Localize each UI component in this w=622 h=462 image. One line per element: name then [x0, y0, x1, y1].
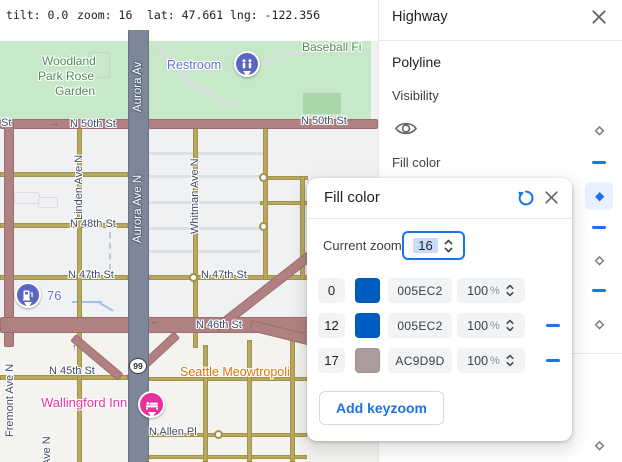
- street-label: N 50th St: [70, 118, 116, 130]
- keyframe-diamond-icon[interactable]: [593, 439, 606, 452]
- zoom-readout: zoom: 16: [77, 8, 132, 22]
- minor-road: [149, 201, 260, 204]
- inn-pin[interactable]: [138, 391, 165, 418]
- park-label-line1[interactable]: Woodland: [42, 54, 96, 68]
- remove-keyzoom-dash-icon[interactable]: [546, 324, 560, 327]
- ballfield-area: [303, 93, 341, 114]
- street-label: N Allen Pl: [149, 426, 197, 438]
- fill-color-label: Fill color: [392, 155, 440, 170]
- street-label: Fremont Ave N: [4, 364, 16, 437]
- color-swatch[interactable]: [355, 278, 380, 303]
- tilt-readout: tilt: 0.0: [6, 8, 68, 22]
- keyzoom-dash-icon[interactable]: [592, 161, 606, 164]
- opacity-value: 100: [467, 284, 488, 298]
- opacity-value: 100: [467, 354, 488, 368]
- road-south-v: [203, 345, 208, 462]
- park-label-line2[interactable]: Park Rose: [38, 69, 94, 83]
- intersection-node: [214, 430, 223, 439]
- street-label: St: [1, 117, 11, 129]
- street-label: N 47th St: [201, 269, 247, 281]
- selected-keyframe[interactable]: [585, 182, 613, 210]
- road-south-v: [247, 340, 252, 462]
- building: [14, 192, 40, 204]
- alley-dashed: [109, 232, 111, 270]
- gas-station-pin[interactable]: [15, 282, 41, 308]
- dialog-close-icon[interactable]: [544, 190, 559, 205]
- keyzoom-level-chip[interactable]: 0: [318, 278, 345, 303]
- percent-sign: %: [490, 320, 500, 332]
- color-swatch[interactable]: [355, 313, 380, 338]
- current-zoom-stepper[interactable]: 16: [402, 231, 465, 260]
- creek: [99, 302, 114, 312]
- keyframe-diamond-icon[interactable]: [593, 254, 606, 267]
- hex-value-chip[interactable]: 005EC2: [388, 313, 452, 338]
- oneway-arrow: →: [50, 118, 59, 128]
- fill-color-dialog: Fill color Current zoom 16 0 005EC2 100 …: [307, 178, 572, 441]
- street-label-aurora: Aurora Ave N: [132, 175, 144, 243]
- stepper-chevrons-icon[interactable]: [505, 353, 515, 368]
- park-label-line3[interactable]: Garden: [55, 84, 95, 98]
- minor-road: [149, 152, 263, 155]
- panel-close-icon[interactable]: [591, 9, 607, 25]
- reset-icon[interactable]: [517, 189, 535, 207]
- minor-road: [149, 227, 260, 230]
- divider: [307, 218, 572, 219]
- baseball-field-label[interactable]: Baseball Fi: [302, 40, 361, 54]
- opacity-stepper[interactable]: 100 %: [457, 278, 525, 303]
- road-south-h: [149, 455, 307, 459]
- keyzoom-dash-icon[interactable]: [592, 226, 606, 229]
- hex-value-chip[interactable]: AC9D9D: [388, 348, 452, 373]
- inn-label[interactable]: Wallingford Inn: [41, 395, 127, 410]
- percent-sign: %: [490, 355, 500, 367]
- map-style-editor: tilt: 0.0 zoom: 16 lat: 47.661 lng: -122…: [0, 0, 622, 462]
- keyframe-diamond-selected-icon: [593, 190, 606, 203]
- road-fremont-ave: [4, 119, 14, 347]
- dialog-title: Fill color: [324, 189, 380, 206]
- restroom-icon: [240, 59, 254, 70]
- lng-readout: lng: -122.356: [230, 8, 320, 22]
- polyline-section-title: Polyline: [392, 54, 441, 70]
- intersection-node: [259, 173, 268, 182]
- keyframe-diamond-icon[interactable]: [593, 124, 606, 137]
- bed-icon: [145, 400, 159, 410]
- percent-sign: %: [490, 285, 500, 297]
- color-swatch[interactable]: [355, 348, 380, 373]
- route-99-shield: 99: [129, 358, 147, 374]
- gas-station-label[interactable]: 76: [47, 288, 61, 303]
- minor-road: [149, 175, 263, 178]
- cat-cafe-label[interactable]: Seattle Meowtropoli: [180, 365, 290, 379]
- remove-keyzoom-dash-icon[interactable]: [546, 359, 560, 362]
- keyzoom-level-chip[interactable]: 17: [318, 348, 345, 373]
- minor-road: [149, 250, 260, 253]
- street-label: N 50th St: [301, 115, 347, 127]
- street-label: Whitman Ave N: [189, 158, 201, 234]
- opacity-value: 100: [467, 319, 488, 333]
- current-zoom-label: Current zoom: [323, 238, 402, 253]
- street-label-aurora: Aurora Av: [132, 62, 144, 112]
- restroom-pin[interactable]: [234, 51, 260, 77]
- keyframe-diamond-icon[interactable]: [593, 318, 606, 331]
- map-status-bar: tilt: 0.0 zoom: 16 lat: 47.661 lng: -122…: [0, 0, 378, 30]
- stepper-chevrons-icon[interactable]: [443, 238, 454, 254]
- panel-title: Highway: [392, 9, 448, 25]
- restroom-label[interactable]: Restroom: [167, 58, 221, 72]
- opacity-stepper[interactable]: 100 %: [457, 348, 525, 373]
- oneway-arrow: ←: [150, 316, 159, 326]
- add-keyzoom-button[interactable]: Add keyzoom: [319, 391, 444, 425]
- keyzoom-level-chip[interactable]: 12: [318, 313, 345, 338]
- lat-readout: lat: 47.661: [147, 8, 223, 22]
- stepper-chevrons-icon[interactable]: [505, 318, 515, 333]
- route-99-number: 99: [133, 361, 142, 371]
- oneway-arrow: ↑: [72, 342, 77, 352]
- street-label: N 46th St: [196, 319, 242, 331]
- road-n-49th: [0, 172, 128, 177]
- hex-value-chip[interactable]: 005EC2: [388, 278, 452, 303]
- street-label: Linden Ave N: [73, 155, 85, 220]
- keyzoom-dash-icon[interactable]: [592, 289, 606, 292]
- street-label: N 45th St: [49, 365, 95, 377]
- current-zoom-value[interactable]: 16: [413, 238, 437, 253]
- street-label: N 47th St: [68, 269, 114, 281]
- opacity-stepper[interactable]: 100 %: [457, 313, 525, 338]
- road-south-v: [290, 335, 295, 462]
- stepper-chevrons-icon[interactable]: [505, 283, 515, 298]
- visibility-eye-icon[interactable]: [394, 120, 418, 137]
- gas-pump-icon: [22, 289, 34, 301]
- road-east-v: [263, 124, 268, 280]
- street-label: Ave N: [41, 436, 53, 462]
- visibility-label: Visibility: [392, 88, 439, 103]
- intersection-node: [259, 222, 268, 231]
- building: [38, 197, 58, 208]
- intersection-node: [189, 273, 198, 282]
- divider: [379, 40, 622, 41]
